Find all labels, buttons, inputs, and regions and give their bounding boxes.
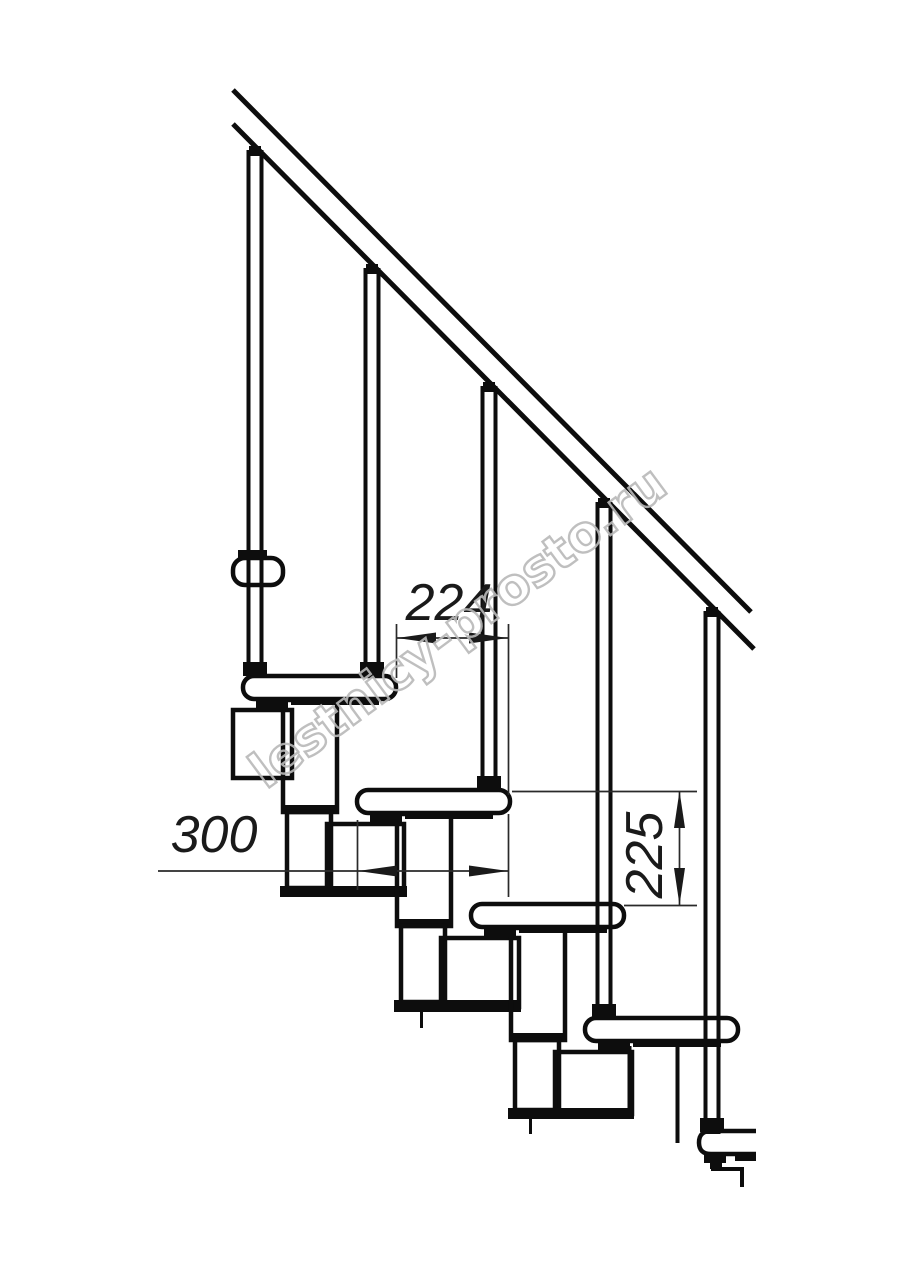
tread-4 — [585, 1018, 738, 1041]
module-flange-bar-2 — [394, 1000, 521, 1012]
support-column-1-lower — [287, 812, 331, 888]
tread-3 — [471, 904, 624, 927]
module-flange-bar-1 — [280, 886, 407, 897]
staircase-drawing-canvas: 224 300 225 lestnicy-prosto.ru — [0, 0, 914, 1280]
tread-2-fitting-left — [370, 811, 402, 823]
module-box-2 — [327, 824, 404, 892]
support-module-chain — [233, 700, 744, 1187]
arrowhead-right-icon — [469, 866, 508, 877]
dimension-label-tread-depth: 300 — [171, 806, 258, 864]
arrowhead-down-icon — [674, 868, 685, 905]
arrowhead-up-icon — [674, 791, 685, 828]
module-box-3 — [441, 938, 519, 1007]
handrail-upper-line — [233, 90, 751, 612]
support-column-3-lower — [515, 1040, 559, 1110]
support-column-2-lower — [401, 926, 445, 1002]
baluster-5-shaft — [706, 613, 719, 1132]
baluster-1-base-collar — [243, 662, 267, 676]
module-flange-bar-3 — [508, 1108, 634, 1119]
dimension-rise-225: 225 — [512, 791, 697, 906]
baluster-4-base-collar — [592, 1004, 616, 1018]
tread-4-fitting-strip — [633, 1039, 721, 1047]
bracket-body — [233, 558, 283, 585]
baluster-4 — [592, 498, 616, 1018]
bracket-cap — [238, 550, 267, 560]
baluster-5 — [700, 607, 724, 1132]
baluster-5-base-collar — [700, 1118, 724, 1132]
baluster-2-shaft — [366, 270, 379, 676]
tread-2 — [357, 790, 510, 813]
tread-2-fitting-strip — [405, 811, 493, 819]
baluster-1 — [243, 146, 267, 676]
baluster-2 — [360, 264, 384, 676]
arrowhead-left-icon — [358, 866, 397, 877]
module-stub-3 — [529, 1119, 532, 1134]
tread-1-fitting-left — [256, 697, 288, 709]
tread-3-fitting-strip — [519, 925, 607, 933]
module-stub-2 — [420, 1012, 423, 1028]
module-box-4 — [555, 1052, 632, 1114]
baluster-3-base-collar — [477, 776, 501, 790]
tread-5-partial — [699, 1131, 756, 1154]
tread-5-fitting-right — [735, 1152, 756, 1161]
tread-5-fitting-foot — [710, 1161, 722, 1169]
baluster-1-shaft — [249, 152, 262, 676]
handrail-bracket — [233, 550, 283, 585]
technical-drawing-page: 224 300 225 lestnicy-prosto.ru — [0, 0, 914, 1280]
baluster-4-shaft — [598, 504, 611, 1018]
dimension-label-rise: 225 — [616, 811, 674, 900]
tread-4-fitting-left — [598, 1039, 630, 1051]
tread-3-fitting-left — [484, 925, 516, 937]
